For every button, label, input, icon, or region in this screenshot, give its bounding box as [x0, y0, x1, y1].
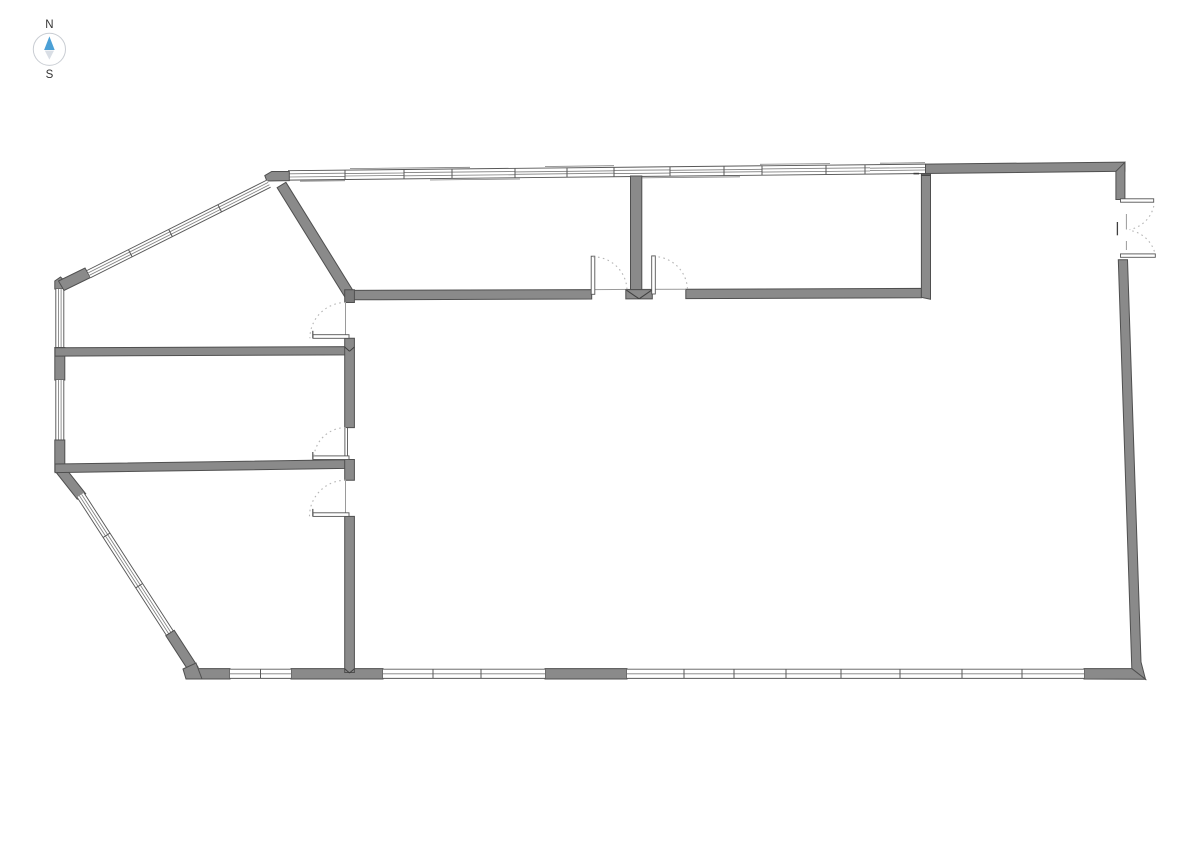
svg-text:S: S	[46, 69, 54, 81]
svg-text:N: N	[45, 19, 53, 31]
